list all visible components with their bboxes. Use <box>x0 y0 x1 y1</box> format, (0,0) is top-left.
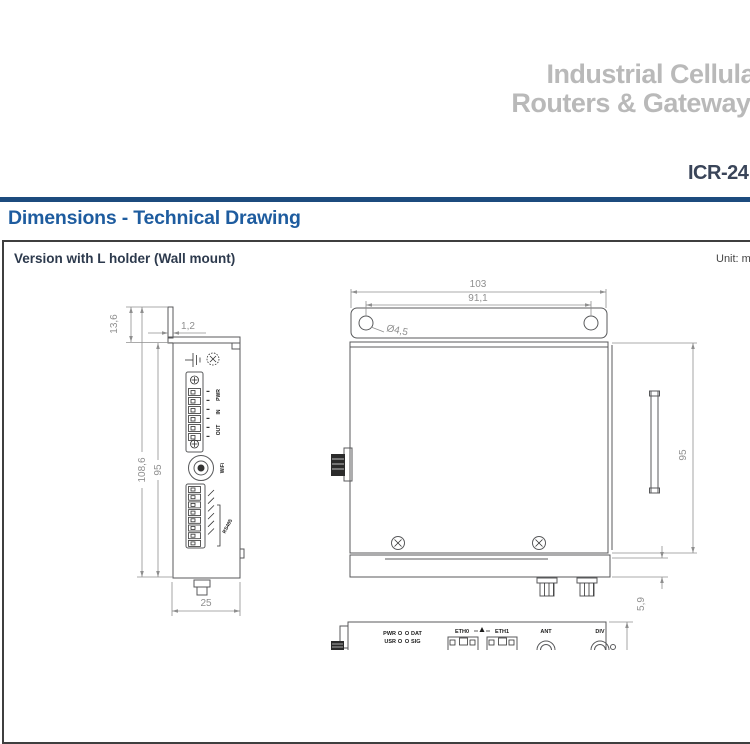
grounding-screw-icon <box>207 353 219 365</box>
dim-hole-diameter: Ø4,5 <box>385 323 409 338</box>
port-label-ant: ANT <box>540 629 552 635</box>
sma-connector-ant <box>537 641 555 650</box>
dim-bracket-thickness: 1,2 <box>181 321 195 332</box>
case-screw-icon <box>533 537 546 550</box>
side-label-pwr: PWR <box>216 389 222 401</box>
port-label-eth0: ETH0 <box>455 629 469 635</box>
case-screw-icon <box>392 537 405 550</box>
dim-holder-thickness: 5,9 <box>636 597 647 611</box>
side-label-out: OUT <box>216 425 222 436</box>
front-view-dimensions: 103 91,1 Ø4,5 95 5,9 <box>351 279 697 611</box>
dim-body-height-front: 95 <box>678 449 689 461</box>
power-terminal-block <box>186 372 210 452</box>
dim-body-height-side: 95 <box>153 464 164 476</box>
antenna-connector <box>331 448 352 481</box>
wifi-antenna-connector <box>189 456 214 481</box>
port-label-eth1: ETH1 <box>495 629 509 635</box>
port-label-div: DIV <box>595 629 605 635</box>
side-label-wifi: WiFi <box>220 462 226 473</box>
dim-overall-width: 103 <box>470 279 487 290</box>
side-label-in: IN <box>216 409 222 414</box>
serial-terminal-block <box>186 484 220 548</box>
led-label-dat: DAT <box>411 631 423 637</box>
led-label-usr: USR <box>384 639 396 645</box>
ground-symbol-icon <box>185 353 200 367</box>
side-view-dimensions: 13,6 108,6 95 1,2 25 <box>109 307 240 616</box>
dim-hole-spacing: 91,1 <box>468 293 488 304</box>
side-view-drawing: PWR IN OUT WiFi RS485 <box>109 307 244 616</box>
led-label-sig: SIG <box>411 639 420 645</box>
sma-foot-connector <box>577 578 597 596</box>
ethernet-icon <box>474 627 490 632</box>
dim-overall-height: 108,6 <box>137 457 148 482</box>
sma-foot-connector <box>537 578 557 596</box>
side-label-serial: RS485 <box>222 518 235 535</box>
antenna-connector-bottom <box>331 641 344 650</box>
technical-drawing: PWR IN OUT WiFi RS485 <box>0 0 750 650</box>
dim-depth: 25 <box>200 598 212 609</box>
rj45-port-eth1 <box>487 637 517 650</box>
rj45-port-eth0 <box>448 637 478 650</box>
led-label-pwr: PWR <box>383 631 396 637</box>
dim-bracket-offset: 13,6 <box>109 314 120 334</box>
front-view-drawing: 103 91,1 Ø4,5 95 5,9 <box>331 279 697 611</box>
bottom-view-drawing: PWR DAT USR SIG ETH0 ETH1 ANT <box>331 622 633 650</box>
